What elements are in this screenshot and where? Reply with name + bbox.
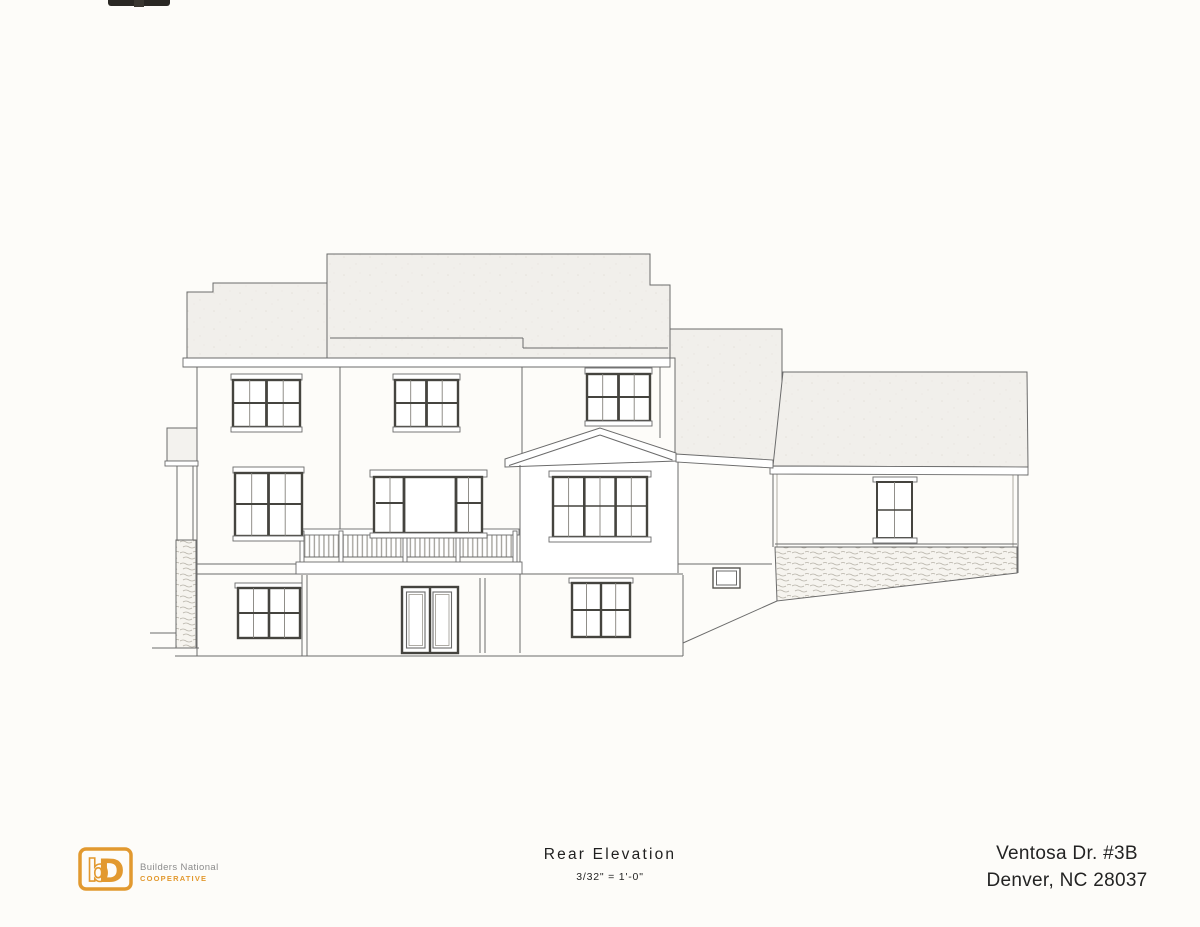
bay-gable-roof (505, 428, 676, 467)
address-block: Ventosa Dr. #3B Denver, NC 28037 (955, 841, 1179, 895)
vent-window (713, 568, 740, 588)
window-right-wing (873, 477, 917, 543)
window-lower-left (235, 583, 302, 638)
left-posts (177, 466, 193, 540)
roof-left (187, 283, 327, 358)
rear-elevation-house-drawing (0, 0, 1200, 927)
window-upper-right (585, 368, 652, 426)
side-box-left (165, 428, 198, 466)
roof-middle (670, 329, 782, 462)
window-lower-right (569, 578, 633, 637)
french-door (402, 587, 458, 653)
logo-letter-d: D (98, 852, 125, 890)
eave-fascia-main (183, 358, 670, 367)
page-root: { "document": { "type_label": "Rear Elev… (0, 0, 1200, 927)
builder-logo: b D Builders National COOPERATIVE (78, 847, 219, 891)
stone-pier-left (152, 540, 199, 648)
roof-right-wing (773, 372, 1028, 467)
window-mid-left (233, 467, 304, 541)
window-center-picture (370, 470, 487, 538)
brand-name: Builders National (140, 862, 219, 873)
window-upper-left (231, 374, 302, 432)
drawing-title: Rear Elevation (450, 846, 770, 864)
drawing-scale: 3/32" = 1'-0" (450, 871, 770, 883)
deck-band (296, 562, 522, 574)
address-line-2: Denver, NC 28037 (955, 868, 1179, 895)
window-upper-center (393, 374, 460, 432)
title-block: Rear Elevation 3/32" = 1'-0" (450, 846, 770, 883)
builder-logo-mark: b D (78, 847, 133, 891)
window-bay-triple (549, 471, 651, 542)
address-line-1: Ventosa Dr. #3B (955, 841, 1179, 868)
eave-fascia-right-wing (770, 466, 1028, 475)
brand-subtitle: COOPERATIVE (140, 874, 219, 883)
stone-band-right (775, 544, 1017, 601)
roof-center (327, 254, 670, 358)
